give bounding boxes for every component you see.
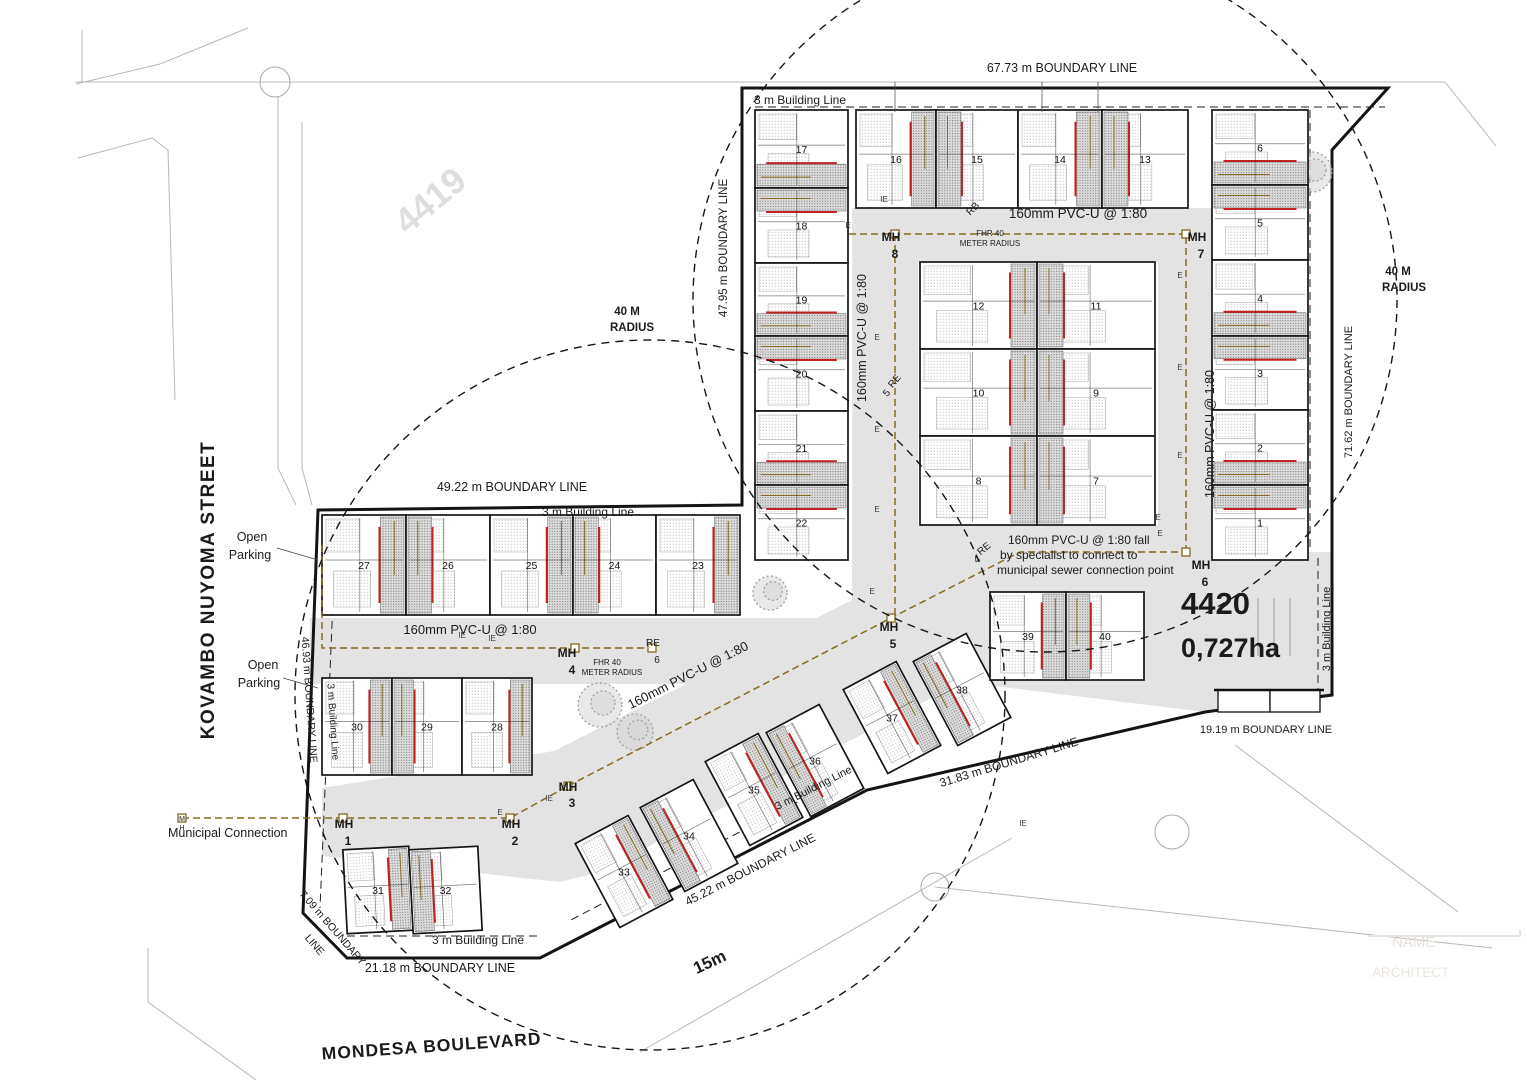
- unit-number: 36: [809, 756, 821, 768]
- label: IE: [1019, 819, 1027, 828]
- label: Parking: [238, 676, 280, 690]
- unit-number: 29: [421, 722, 433, 734]
- room: [924, 353, 971, 382]
- service-strip: [548, 517, 571, 613]
- room: [326, 519, 360, 552]
- label: E: [1155, 513, 1160, 522]
- service-strip: [757, 314, 846, 334]
- room: [472, 732, 503, 767]
- service-strip: [1039, 264, 1063, 347]
- room: [1030, 165, 1067, 200]
- unit-number: 1: [1257, 518, 1263, 530]
- boundary-east: 71.62 m BOUNDARY LINE: [1343, 326, 1355, 458]
- room: [1216, 264, 1254, 289]
- room: [936, 398, 987, 429]
- street-edge-line: [278, 97, 296, 505]
- boundary-1919: 19.19 m BOUNDARY LINE: [1200, 724, 1332, 736]
- service-strip: [1011, 351, 1035, 434]
- mh4: MH: [558, 646, 577, 660]
- label: LINE: [302, 932, 326, 957]
- pipe-label-top: 160mm PVC-U @ 1:80: [1009, 206, 1147, 221]
- service-strip: [1104, 112, 1128, 206]
- service-strip: [1076, 112, 1100, 206]
- street-edge-line: [1235, 745, 1458, 912]
- unit-number: 7: [1093, 476, 1099, 488]
- label: FHR 40: [976, 229, 1004, 238]
- label: E: [874, 333, 879, 342]
- parcel-area: 0,727ha: [1181, 633, 1281, 663]
- detail-line: [277, 548, 318, 560]
- label: Parking: [229, 548, 271, 562]
- site-plan-page: 4419NAMEARCHITECT 1718192021221615141365…: [0, 0, 1527, 1080]
- unit-number: 14: [1054, 154, 1066, 166]
- sewer-note-1: 160mm PVC-U @ 1:80 fall: [1008, 533, 1150, 547]
- street-kovambo: KOVAMBO NUYOMA STREET: [198, 441, 219, 740]
- room: [466, 682, 494, 714]
- unit-number: 35: [748, 785, 760, 797]
- service-strip: [757, 164, 846, 186]
- label: 8: [892, 247, 899, 261]
- service-strip: [757, 462, 846, 483]
- pipe-label-west: 160mm PVC-U @ 1:80: [855, 274, 869, 402]
- room: [768, 230, 809, 257]
- street-edge-line: [148, 948, 256, 1080]
- service-strip: [370, 680, 390, 773]
- label: H: [179, 825, 184, 832]
- unit-number: 5: [1257, 218, 1263, 230]
- tree: [628, 720, 648, 740]
- mh8: MH: [882, 230, 901, 244]
- boundary-west-upper: 47.95 m BOUNDARY LINE: [718, 179, 730, 318]
- street-edge-line: [78, 138, 175, 400]
- label: FHR 40: [593, 658, 621, 667]
- label: 1: [345, 834, 352, 848]
- label: RADIUS: [610, 322, 654, 334]
- label: E: [874, 425, 879, 434]
- service-strip: [912, 112, 934, 206]
- label: RADIUS: [1382, 282, 1426, 294]
- unit-number: 20: [796, 369, 808, 381]
- service-strip: [1214, 338, 1306, 359]
- mh3: MH: [559, 780, 578, 794]
- service-strip: [380, 517, 404, 613]
- label: M: [179, 816, 185, 823]
- detail-line: [1368, 930, 1520, 936]
- label: 4: [569, 663, 576, 677]
- street-mondesa: MONDESA BOULEVARD: [321, 1028, 542, 1063]
- label: 7: [1198, 247, 1205, 261]
- label: METER RADIUS: [582, 668, 642, 677]
- radius-label-right: 40 M: [1385, 266, 1411, 278]
- unit-number: 39: [1022, 631, 1034, 643]
- sewer-note-3: municipal sewer connection point: [997, 563, 1174, 577]
- unit-number: 16: [890, 154, 902, 166]
- room: [994, 596, 1024, 625]
- municipal-connection: Municipal Connection: [168, 826, 288, 840]
- room: [1022, 114, 1056, 146]
- service-strip: [1011, 264, 1035, 347]
- watermark-erf-4419: 4419: [386, 159, 474, 242]
- service-strip: [1068, 594, 1090, 678]
- room: [502, 571, 539, 607]
- room: [1225, 377, 1267, 404]
- mh7: MH: [1188, 230, 1207, 244]
- room: [334, 571, 371, 607]
- room: [936, 311, 987, 342]
- unit-number: 27: [358, 560, 370, 572]
- service-strip: [757, 487, 846, 508]
- pipe-label-east: 160mm PVC-U @ 1:80: [1203, 370, 1217, 498]
- unit-number: 21: [796, 443, 808, 455]
- unit-number: 6: [1257, 143, 1263, 155]
- label: IE: [488, 634, 496, 643]
- label: E: [497, 808, 502, 817]
- mh5: MH: [880, 620, 899, 634]
- unit-number: 32: [440, 885, 452, 897]
- unit-number: 30: [351, 722, 363, 734]
- unit-number: 40: [1099, 631, 1111, 643]
- label: E: [1177, 451, 1182, 460]
- room: [759, 114, 796, 140]
- unit-number: 18: [796, 221, 808, 233]
- label: 3 m Building Line: [432, 933, 524, 947]
- service-strip: [575, 517, 598, 613]
- label: IE: [458, 631, 466, 640]
- unit-number: 8: [976, 476, 982, 488]
- label: 3: [569, 796, 576, 810]
- room: [924, 266, 971, 295]
- radius-label-left: 40 M: [614, 306, 640, 318]
- room: [347, 852, 375, 881]
- room: [768, 378, 809, 405]
- service-strip: [1214, 462, 1306, 483]
- unit-number: 13: [1139, 154, 1151, 166]
- service-strip: [938, 112, 961, 206]
- unit-number: 2: [1257, 443, 1263, 455]
- service-strip: [714, 517, 738, 613]
- label: 6: [654, 655, 660, 666]
- unit-number: 38: [956, 685, 968, 697]
- unit-number: 11: [1091, 301, 1102, 313]
- mh6: MH: [1192, 558, 1211, 572]
- service-strip: [1043, 594, 1064, 678]
- label: 3 m Building Line: [542, 505, 634, 519]
- unit-number: 25: [526, 560, 538, 572]
- service-strip: [1039, 351, 1063, 434]
- label: E: [845, 221, 850, 230]
- sewer-note-2: by specialist to connect to: [1000, 548, 1138, 562]
- room: [668, 571, 705, 607]
- label: E: [869, 587, 874, 596]
- service-strip: [757, 190, 846, 211]
- unit-number: 26: [442, 560, 454, 572]
- building-line-top: 3 m Building Line: [754, 93, 846, 107]
- label: METER RADIUS: [960, 239, 1020, 248]
- room: [1225, 227, 1267, 254]
- room: [860, 114, 892, 146]
- label: E: [1157, 529, 1162, 538]
- room: [1001, 641, 1034, 673]
- mh2: MH: [502, 817, 521, 831]
- service-strip: [394, 680, 414, 773]
- parcel-number: 4420: [1181, 586, 1250, 621]
- mh1: MH: [335, 817, 354, 831]
- survey-circle: [1155, 815, 1189, 849]
- tree: [764, 582, 783, 601]
- room: [759, 415, 796, 439]
- service-strip: [1039, 438, 1063, 523]
- service-strip: [1011, 438, 1035, 523]
- street-edge-line: [1445, 82, 1496, 146]
- unit-number: 10: [973, 388, 985, 400]
- room: [494, 519, 527, 552]
- unit-number: 28: [491, 722, 503, 734]
- pipe-label-left-road: 160mm PVC-U @ 1:80: [403, 622, 536, 637]
- unit-number: 3: [1257, 368, 1263, 380]
- unit-number: 24: [609, 560, 621, 572]
- label: 5: [890, 637, 897, 651]
- boundary-4922: 49.22 m BOUNDARY LINE: [437, 480, 587, 494]
- street-edge-line: [76, 28, 248, 84]
- label: 3 m Building Line: [1321, 587, 1333, 671]
- label: E: [1177, 363, 1182, 372]
- room: [936, 486, 987, 518]
- manhole-square: [1182, 548, 1190, 556]
- room: [1216, 114, 1254, 139]
- label: E: [1177, 271, 1182, 280]
- unit-number: 31: [372, 885, 384, 897]
- street-edge-line: [302, 122, 312, 505]
- service-strip: [408, 517, 432, 613]
- room: [660, 519, 694, 552]
- road-width: 15m: [690, 946, 729, 978]
- re6: RE: [646, 638, 660, 649]
- service-strip: [1214, 313, 1306, 334]
- unit-number: 33: [618, 867, 630, 879]
- open-parking-1: Open: [237, 530, 268, 544]
- unit-number: 19: [796, 295, 808, 307]
- unit-number: 17: [796, 144, 808, 156]
- service-strip: [510, 680, 530, 773]
- room: [924, 440, 971, 469]
- site-plan-drawing: 4419NAMEARCHITECT 1718192021221615141365…: [0, 0, 1527, 1080]
- unit-number: 22: [796, 518, 808, 530]
- service-strip: [1214, 187, 1306, 208]
- service-strip: [757, 338, 846, 359]
- parking-bay: [1270, 690, 1320, 712]
- service-strip: [1214, 162, 1306, 183]
- label: E: [874, 505, 879, 514]
- unit-number: 37: [886, 713, 898, 725]
- service-strip: [1214, 487, 1306, 508]
- room: [759, 267, 796, 291]
- unit-number: 9: [1093, 388, 1099, 400]
- label: 2: [512, 834, 519, 848]
- unit-number: 4: [1257, 293, 1263, 305]
- titleblock-architect: ARCHITECT: [1372, 965, 1449, 980]
- unit-number: 12: [973, 301, 985, 313]
- boundary-top: 67.73 m BOUNDARY LINE: [987, 61, 1137, 75]
- unit-number: 34: [683, 831, 695, 843]
- unit-number: 15: [971, 154, 983, 166]
- boundary-2118: 21.18 m BOUNDARY LINE: [365, 961, 515, 975]
- room: [1225, 527, 1267, 554]
- label: IE: [880, 195, 888, 204]
- label: IE: [545, 794, 553, 803]
- unit-number: 23: [692, 560, 704, 572]
- tree: [591, 691, 615, 715]
- parking-bay: [1218, 690, 1270, 712]
- room: [1216, 414, 1254, 439]
- open-parking-2: Open: [248, 658, 279, 672]
